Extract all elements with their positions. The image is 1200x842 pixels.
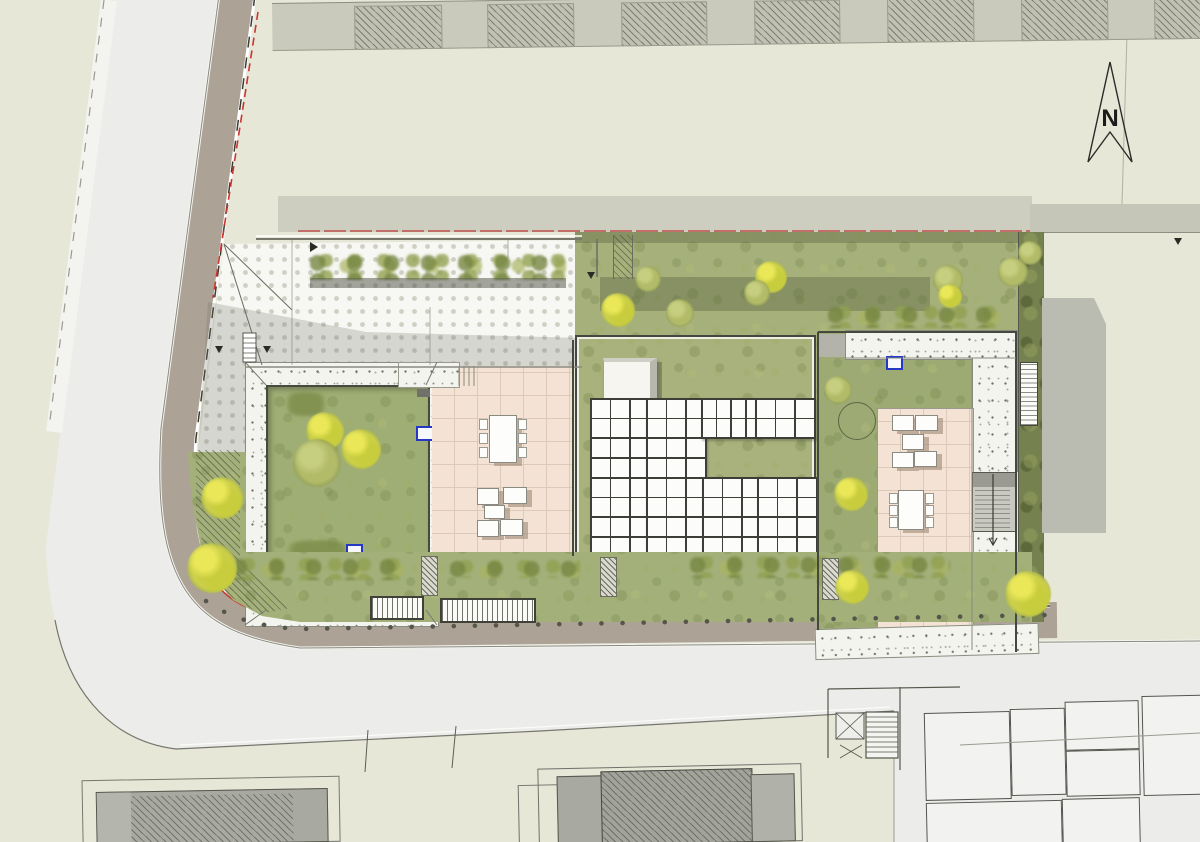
- building-east-inner-lines: [845, 358, 1016, 650]
- parcel-divider: [960, 733, 1200, 745]
- tree-yellow: [835, 570, 869, 604]
- linework-overlay: [0, 0, 1200, 842]
- tree-olive: [666, 299, 694, 327]
- tree-yellow: [187, 543, 237, 593]
- bollard-dots: [206, 601, 1048, 629]
- tree-yellow: [601, 293, 635, 327]
- stair-direction-arrow: [989, 474, 997, 545]
- courtyard-guide-lines: [224, 244, 292, 365]
- tree-olive: [1018, 241, 1042, 265]
- terrace-steps: [459, 366, 474, 386]
- tree-olive: [635, 266, 661, 292]
- entrance-marker: [263, 346, 271, 353]
- north-arrow: N: [1080, 58, 1140, 170]
- roof-mitre-lines: [245, 362, 437, 625]
- tree-olive: [293, 439, 341, 487]
- tree-olive: [744, 280, 770, 306]
- paving-joints: [292, 238, 508, 365]
- tree-yellow: [201, 477, 243, 519]
- tree-olive: [824, 376, 852, 404]
- site-plan-canvas: N: [0, 0, 1200, 842]
- tree-yellow: [1005, 571, 1051, 617]
- north-label: N: [1101, 105, 1118, 132]
- ladder-symbol: [243, 333, 256, 362]
- entrance-marker: [215, 346, 223, 353]
- neighbour-stair-symbol: [828, 687, 960, 770]
- north-arrow-icon: N: [1080, 58, 1140, 170]
- tree-yellow: [341, 429, 381, 469]
- tree-yellow: [938, 284, 962, 308]
- entrance-marker: [587, 272, 595, 279]
- tree-yellow: [834, 477, 868, 511]
- entrance-marker: [1174, 238, 1182, 245]
- entrance-marker: [310, 242, 318, 252]
